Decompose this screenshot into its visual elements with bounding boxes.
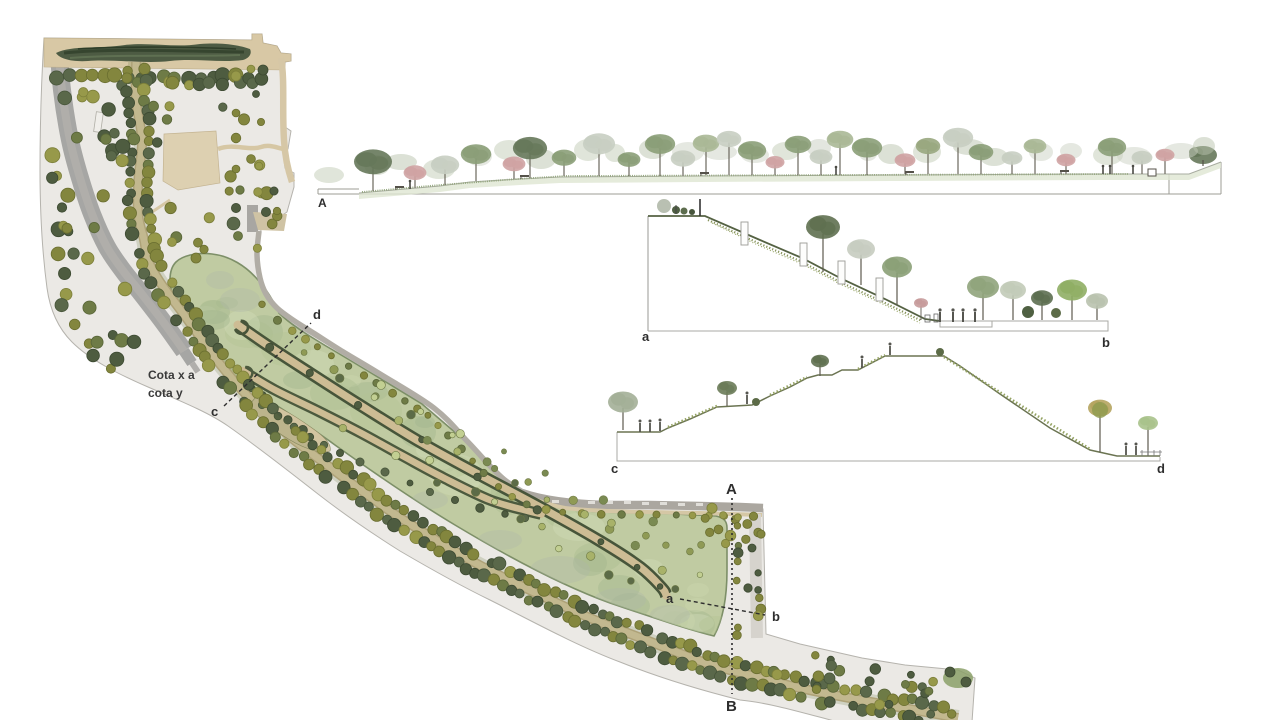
svg-text:b: b [772, 609, 780, 624]
svg-text:Cota x a: Cota x a [148, 368, 195, 382]
svg-text:c: c [211, 404, 218, 419]
svg-text:A: A [318, 196, 327, 210]
svg-text:c: c [611, 461, 618, 476]
svg-text:B: B [726, 698, 737, 715]
svg-text:d: d [1157, 461, 1165, 476]
svg-text:cota y: cota y [148, 386, 183, 400]
svg-text:a: a [642, 329, 650, 344]
svg-text:b: b [1102, 335, 1110, 350]
svg-text:A: A [726, 481, 737, 498]
svg-text:a: a [666, 591, 674, 606]
svg-text:d: d [313, 307, 321, 322]
